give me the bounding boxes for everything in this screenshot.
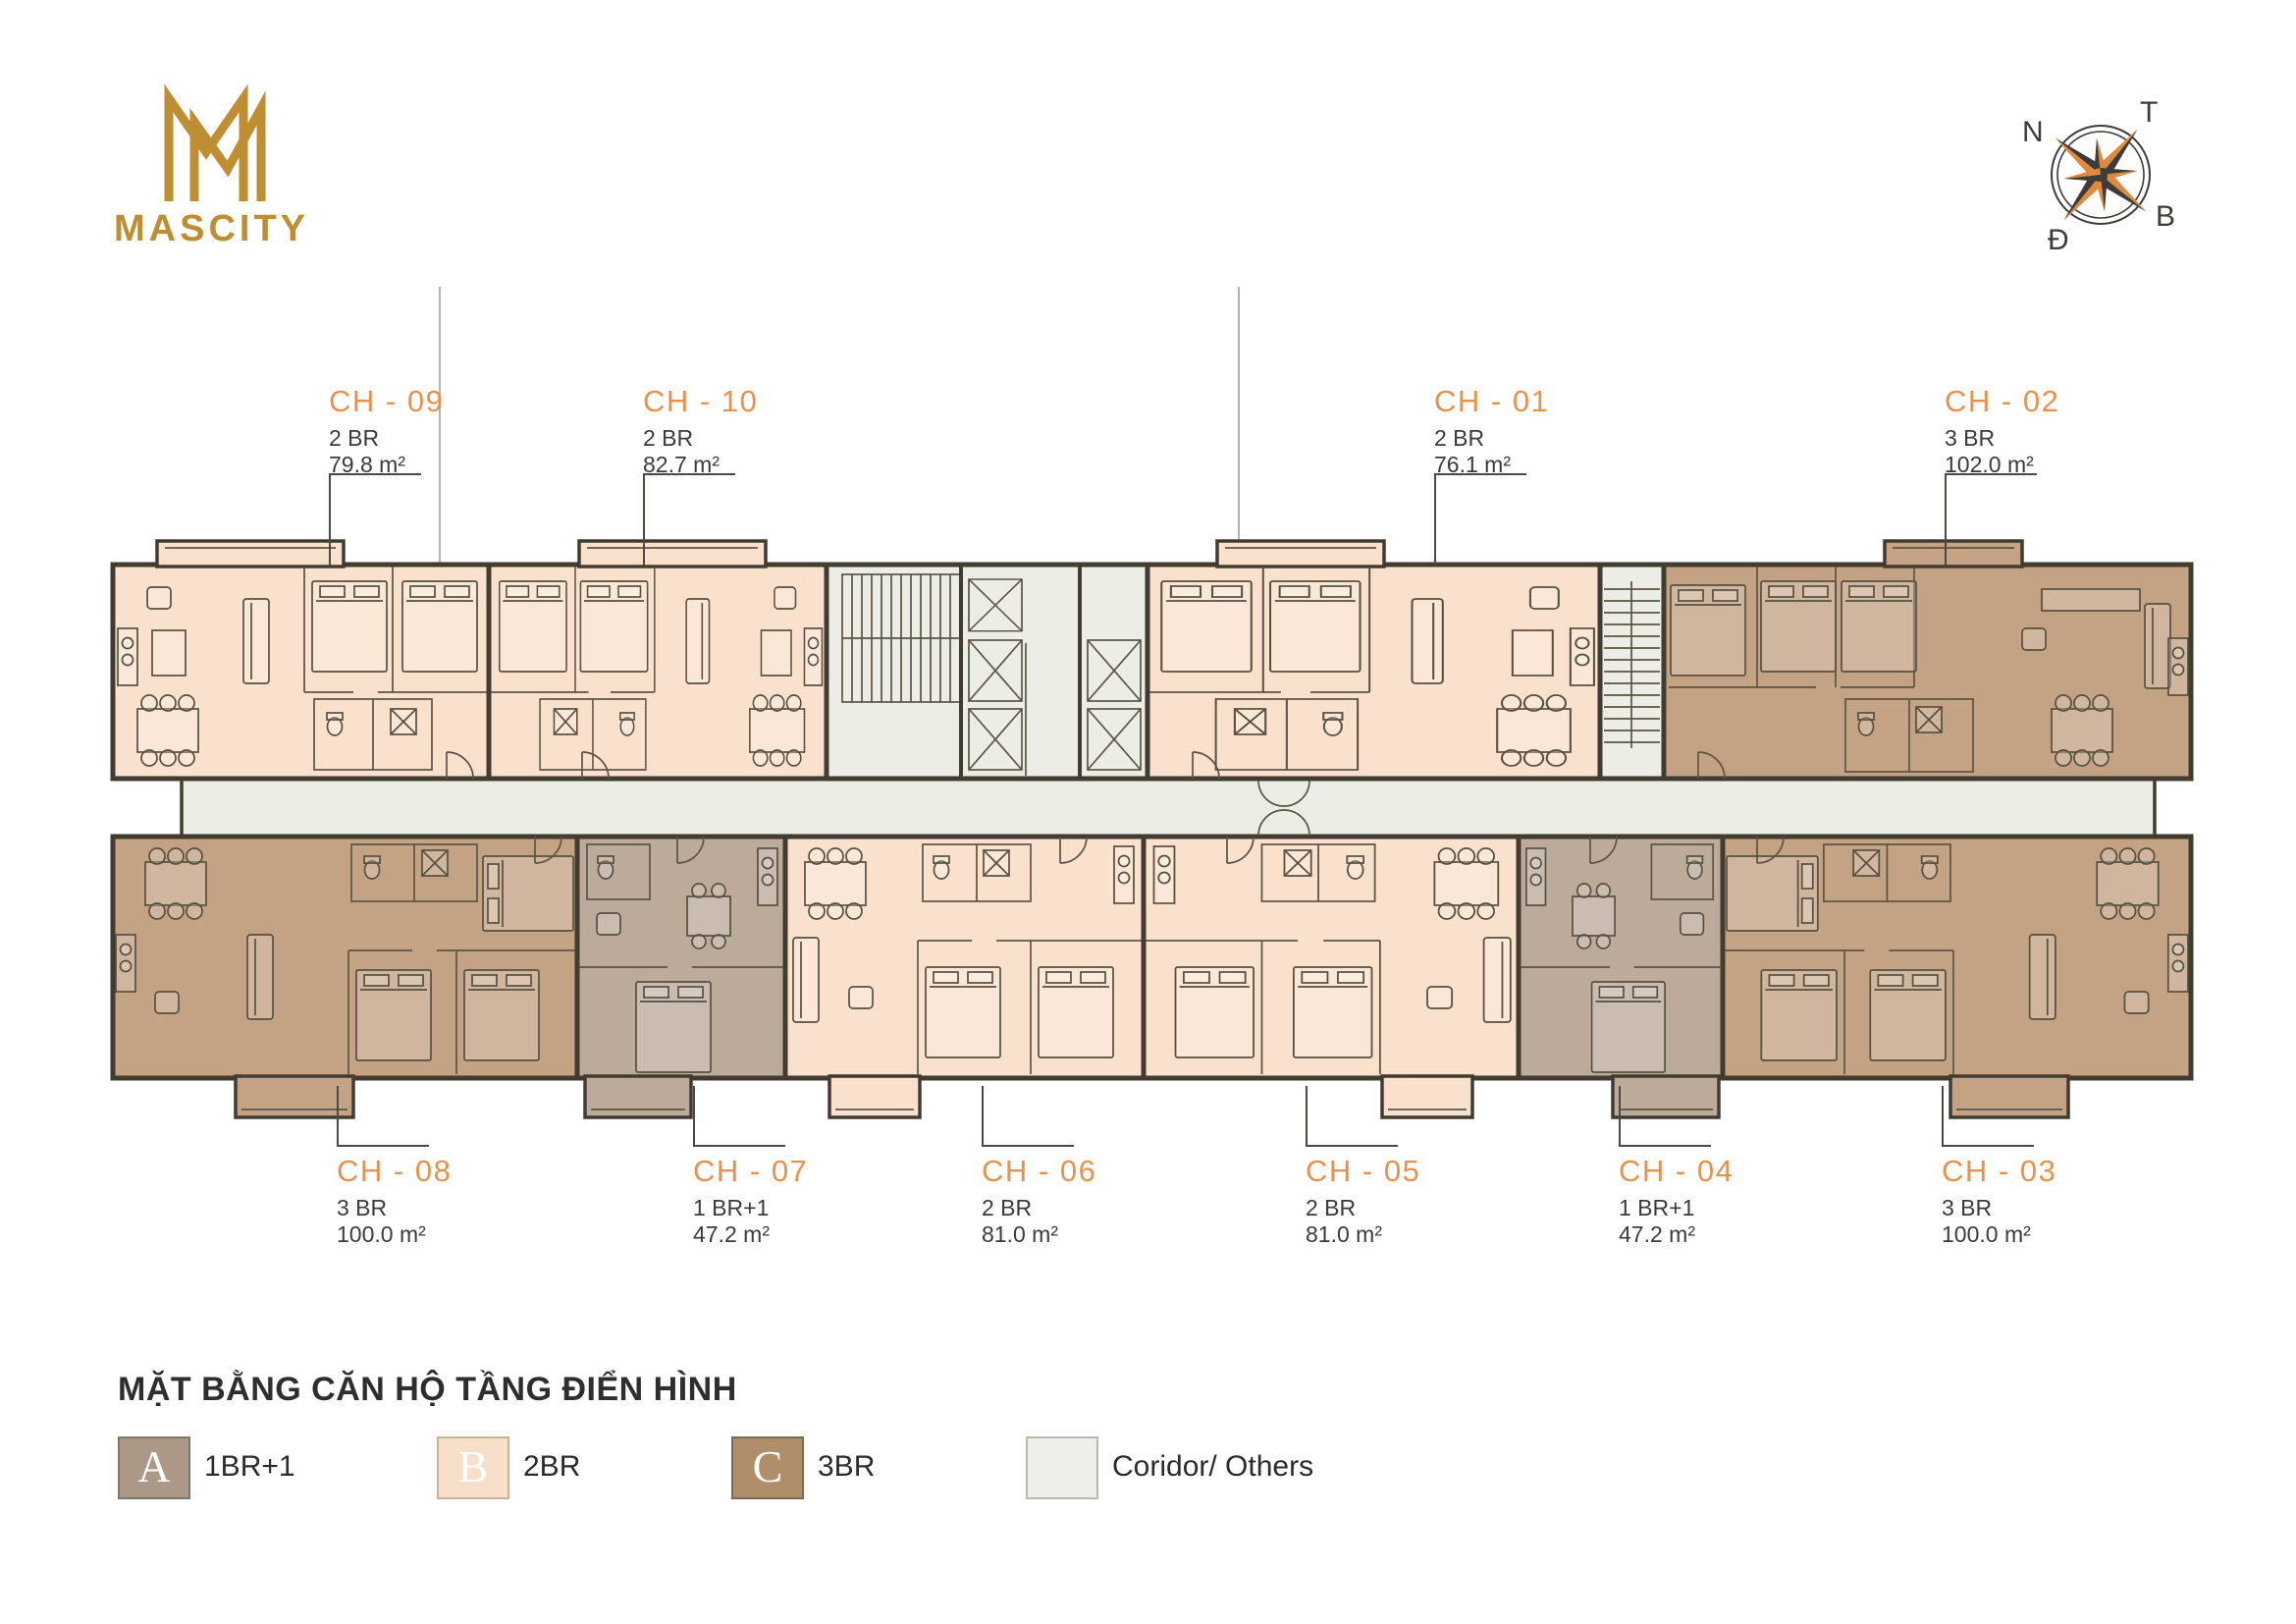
apt-area: 81.0 m² (982, 1221, 1096, 1248)
leader-ch-08 (337, 1086, 429, 1147)
legend-item-2br: B 2BR (437, 1436, 509, 1499)
page-title: MẶT BẰNG CĂN HỘ TẦNG ĐIỂN HÌNH (118, 1371, 737, 1409)
label-ch-10: CH - 10 2 BR 82.7 m² (643, 385, 758, 478)
apt-area: 47.2 m² (1619, 1221, 1734, 1248)
leader-ch-10 (643, 473, 735, 566)
legend-label: 3BR (818, 1450, 875, 1484)
apt-type: 2 BR (643, 425, 758, 452)
mascity-logo-mark (169, 98, 261, 201)
compass-label-d: Đ (2048, 224, 2069, 257)
corridor (182, 779, 2155, 837)
apt-area: 100.0 m² (337, 1221, 452, 1248)
apt-code: CH - 08 (337, 1155, 452, 1188)
apt-code: CH - 10 (643, 385, 758, 418)
section-lines (440, 287, 1239, 563)
legend-letter: C (731, 1436, 804, 1499)
label-ch-02: CH - 02 3 BR 102.0 m² (1945, 385, 2059, 478)
leader-ch-03 (1942, 1086, 2034, 1147)
leader-ch-05 (1306, 1086, 1398, 1147)
compass-label-t: T (2140, 96, 2158, 130)
label-ch-08: CH - 08 3 BR 100.0 m² (337, 1155, 452, 1248)
label-ch-03: CH - 03 3 BR 100.0 m² (1942, 1155, 2056, 1248)
compass-label-b: B (2156, 200, 2175, 234)
label-ch-09: CH - 09 2 BR 79.8 m² (329, 385, 444, 478)
leader-ch-09 (329, 473, 421, 566)
balconies-bottom (236, 1076, 2068, 1117)
label-ch-07: CH - 07 1 BR+1 47.2 m² (693, 1155, 808, 1248)
floor-plan-page: MASCITY N T B Đ CH - 09 2 BR 79.8 m² CH … (0, 0, 2296, 1624)
legend-label: Coridor/ Others (1112, 1450, 1313, 1484)
apt-type: 2 BR (329, 425, 444, 452)
leader-ch-06 (982, 1086, 1074, 1147)
apt-area: 100.0 m² (1942, 1221, 2056, 1248)
label-ch-01: CH - 01 2 BR 76.1 m² (1434, 385, 1549, 478)
legend-item-3br: C 3BR (731, 1436, 804, 1499)
label-ch-06: CH - 06 2 BR 81.0 m² (982, 1155, 1096, 1248)
apt-type: 2 BR (1434, 425, 1549, 452)
apt-type: 3 BR (1942, 1195, 2056, 1221)
legend-item-corridor: Coridor/ Others (1026, 1436, 1098, 1499)
apt-code: CH - 04 (1619, 1155, 1734, 1188)
apt-type: 1 BR+1 (693, 1195, 808, 1221)
apt-code: CH - 09 (329, 385, 444, 418)
compass-label-n: N (2022, 116, 2044, 149)
apt-code: CH - 05 (1306, 1155, 1420, 1188)
legend-label: 2BR (523, 1450, 580, 1484)
label-ch-05: CH - 05 2 BR 81.0 m² (1306, 1155, 1420, 1248)
legend-label: 1BR+1 (204, 1450, 295, 1484)
apt-code: CH - 03 (1942, 1155, 2056, 1188)
compass-icon (2048, 122, 2153, 227)
apt-code: CH - 01 (1434, 385, 1549, 418)
apt-type: 3 BR (1945, 425, 2059, 452)
apt-type: 1 BR+1 (1619, 1195, 1734, 1221)
leader-ch-07 (693, 1086, 785, 1147)
leader-ch-02 (1945, 473, 2037, 566)
apt-area: 81.0 m² (1306, 1221, 1420, 1248)
legend-letter (1026, 1436, 1098, 1499)
apt-code: CH - 02 (1945, 385, 2059, 418)
apt-code: CH - 07 (693, 1155, 808, 1188)
leader-ch-04 (1619, 1086, 1711, 1147)
legend-letter: B (437, 1436, 509, 1499)
apt-type: 2 BR (1306, 1195, 1420, 1221)
leader-ch-01 (1434, 473, 1526, 566)
apt-code: CH - 06 (982, 1155, 1096, 1188)
legend-letter: A (118, 1436, 190, 1499)
brand-logo-text: MASCITY (114, 208, 309, 250)
apt-type: 3 BR (337, 1195, 452, 1221)
legend-item-1br1: A 1BR+1 (118, 1436, 190, 1499)
apt-area: 47.2 m² (693, 1221, 808, 1248)
apt-type: 2 BR (982, 1195, 1096, 1221)
label-ch-04: CH - 04 1 BR+1 47.2 m² (1619, 1155, 1734, 1248)
